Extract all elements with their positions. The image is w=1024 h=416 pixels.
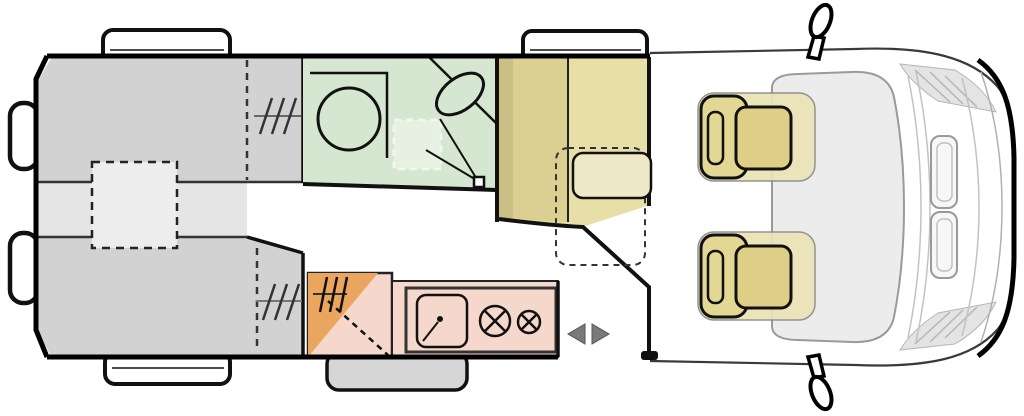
campervan-floorplan xyxy=(0,0,1024,416)
bathroom xyxy=(303,56,497,222)
entry-door-arrows xyxy=(568,324,609,344)
door-pillar-foot xyxy=(641,351,658,360)
roof-vent xyxy=(394,120,441,169)
headlight-left xyxy=(931,136,957,208)
cab-seat-top-cushion xyxy=(736,107,791,169)
rear-bed-bottom xyxy=(38,237,303,358)
floorplan-canvas xyxy=(0,0,1024,416)
mirror-arm-bottom xyxy=(808,355,824,378)
dinette-backrest xyxy=(513,57,568,222)
headlight-right xyxy=(931,212,957,278)
cab-seat-bottom xyxy=(698,232,815,320)
door-arrow-right-icon xyxy=(592,324,609,344)
door-pivot xyxy=(474,177,484,187)
mirror-head-top xyxy=(806,2,835,40)
dinette-wall-strip xyxy=(499,57,513,219)
cab-seat-top xyxy=(698,93,815,181)
cab-seat-bottom-cushion xyxy=(736,246,791,308)
mirror-head-bottom xyxy=(806,374,835,412)
rear-beds xyxy=(38,57,303,358)
mirror-arm-top xyxy=(808,36,824,59)
door-arrow-left-icon xyxy=(568,324,585,344)
corridor-gap xyxy=(247,183,303,237)
kitchen xyxy=(308,273,558,357)
bed-infill-cushion xyxy=(92,162,177,248)
faucet-dot xyxy=(437,316,443,322)
table xyxy=(573,153,651,198)
